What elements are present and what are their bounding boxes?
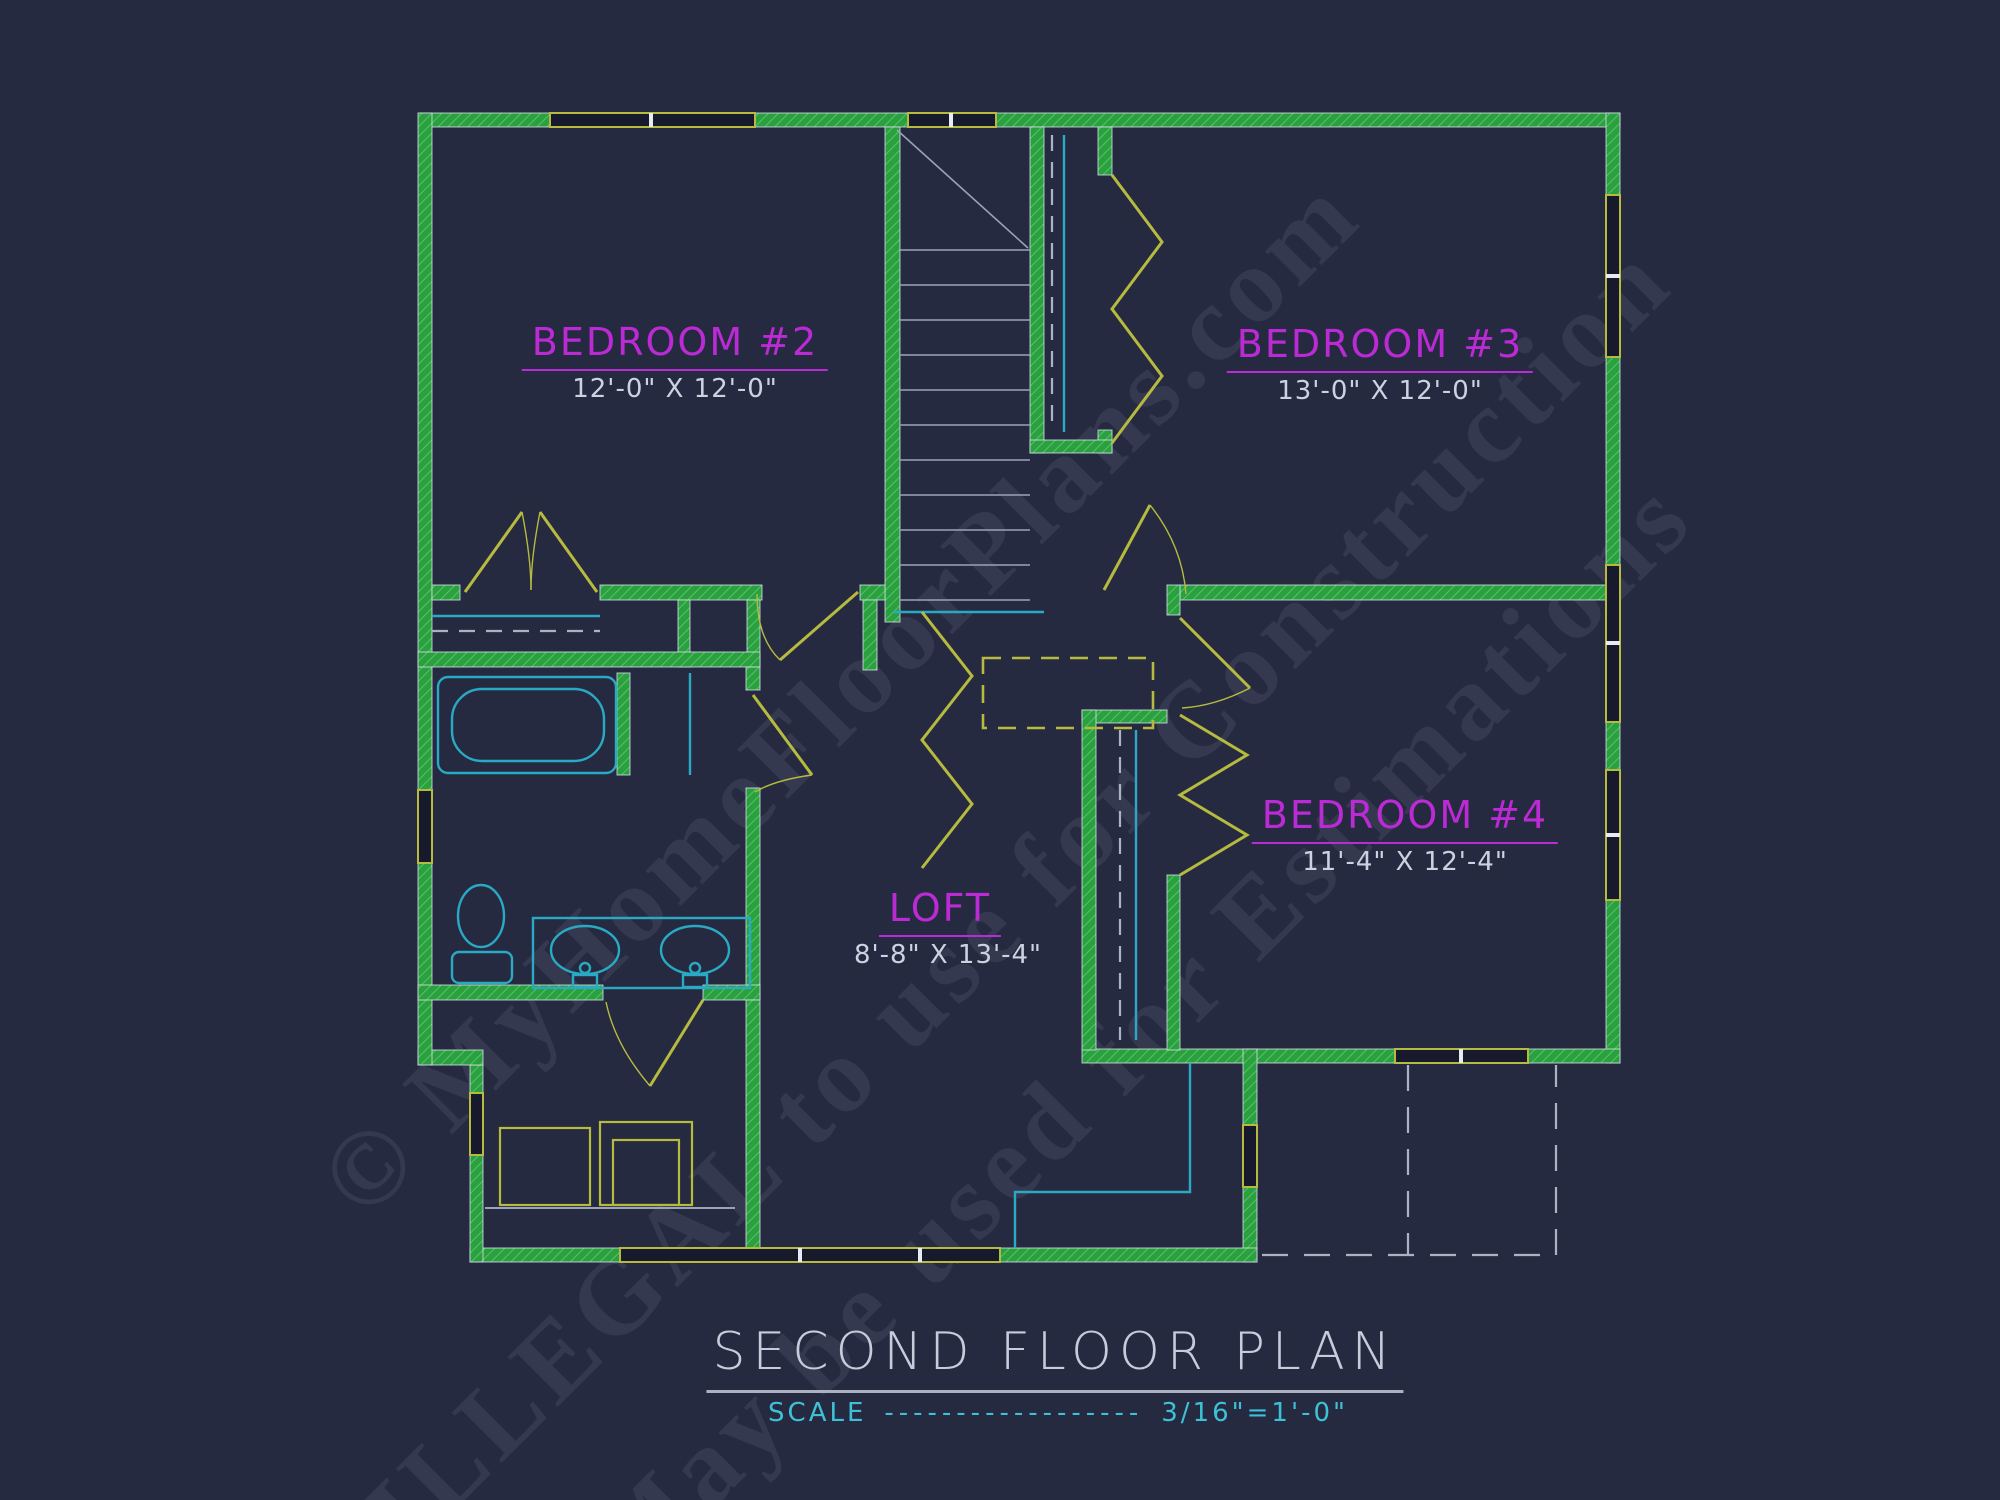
stairs [893, 130, 1044, 612]
bathroom-fixtures [438, 673, 750, 988]
window [1395, 1049, 1528, 1063]
door-swing-bedroom2 [757, 592, 858, 660]
scale-label: SCALE [768, 1398, 866, 1428]
wall [1082, 710, 1096, 1050]
wall [860, 585, 885, 600]
window [1243, 1125, 1257, 1187]
scale-dashes: ------------------ [884, 1398, 1143, 1428]
wall [863, 600, 877, 670]
vanity-sinks-fixture [533, 918, 750, 988]
window [418, 790, 432, 863]
wall [1098, 127, 1112, 175]
door-swing-bedroom3 [1104, 505, 1186, 594]
plan-title: SECOND FLOOR PLAN [706, 1322, 1403, 1393]
wall [600, 585, 762, 600]
wall [1180, 585, 1606, 600]
scale-line: SCALE ------------------ 3/16"=1'-0" [768, 1398, 1348, 1428]
scale-value: 3/16"=1'-0" [1161, 1398, 1348, 1428]
window [908, 113, 996, 127]
wall [746, 1000, 760, 1248]
wall [885, 127, 900, 622]
closet-double-doors-bedroom2 [465, 512, 597, 592]
wall [1030, 440, 1112, 453]
wall [617, 673, 630, 775]
wall [418, 652, 760, 667]
misc-lines [983, 658, 1556, 1255]
room-dims-bedroom4: 11'-4" X 12'-4" [1302, 847, 1508, 877]
floor-plan-drawing [0, 0, 2000, 1500]
window [1606, 565, 1620, 722]
room-label-bedroom2: BEDROOM #2 [522, 320, 828, 371]
door-swing-bathroom [753, 695, 812, 792]
wall [746, 788, 760, 1000]
bifold-doors-bedroom4-closet [1180, 715, 1247, 875]
wall [418, 113, 432, 1065]
laundry-appliances [485, 1122, 735, 1208]
room-dims-bedroom3: 13'-0" X 12'-0" [1277, 376, 1483, 406]
wall [1167, 875, 1180, 1050]
room-label-loft: LOFT [879, 886, 1001, 937]
door-swing-laundry [606, 1000, 703, 1086]
bathtub-fixture [438, 677, 616, 773]
window [1606, 770, 1620, 900]
wall [1167, 585, 1180, 615]
roof-outline-cyan [1015, 1063, 1190, 1248]
wall [1082, 1049, 1620, 1063]
room-dims-bedroom2: 12'-0" X 12'-0" [572, 374, 778, 404]
toilet-fixture [452, 885, 512, 983]
roof-outline-dashed [1262, 1065, 1556, 1255]
floor-plan-canvas: © MyHomeFloorPlans.com ILLEGAL to use fo… [0, 0, 2000, 1500]
window [550, 113, 755, 127]
room-label-bedroom4: BEDROOM #4 [1252, 793, 1558, 844]
room-label-bedroom3: BEDROOM #3 [1227, 322, 1533, 373]
room-dims-loft: 8'-8" X 13'-4" [854, 940, 1042, 970]
dryer-door [613, 1140, 679, 1205]
window [470, 1093, 483, 1155]
window [1606, 195, 1620, 357]
washer [500, 1128, 590, 1205]
door-swing-bedroom4 [1180, 618, 1250, 708]
wall [1030, 127, 1044, 453]
window [620, 1248, 1000, 1262]
bifold-doors-loft-closet [922, 612, 972, 868]
wall [432, 585, 460, 600]
wall [746, 667, 760, 690]
bifold-doors-hall-closet [1112, 175, 1162, 443]
